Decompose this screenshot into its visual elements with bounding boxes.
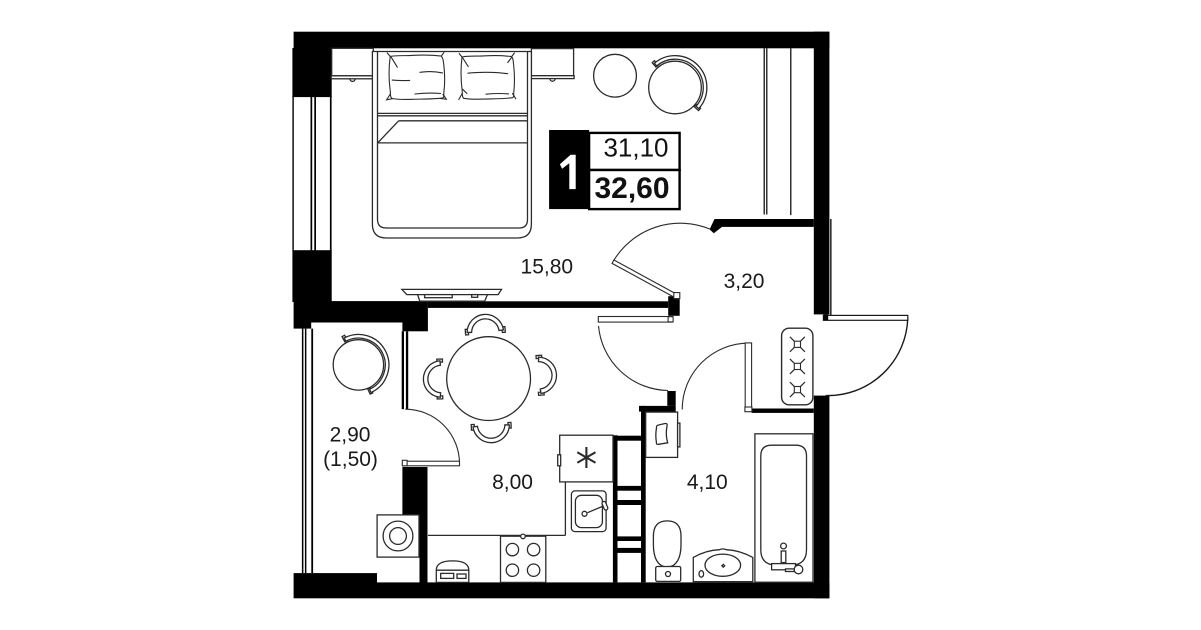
- svg-text:32,60: 32,60: [594, 172, 669, 205]
- svg-text:8,00: 8,00: [492, 471, 533, 494]
- svg-text:3,20: 3,20: [724, 270, 765, 293]
- svg-text:(1,50): (1,50): [323, 448, 378, 471]
- svg-text:31,10: 31,10: [603, 133, 668, 163]
- svg-text:4,10: 4,10: [687, 471, 728, 494]
- svg-text:2,90: 2,90: [330, 424, 371, 447]
- svg-text:15,80: 15,80: [521, 256, 574, 279]
